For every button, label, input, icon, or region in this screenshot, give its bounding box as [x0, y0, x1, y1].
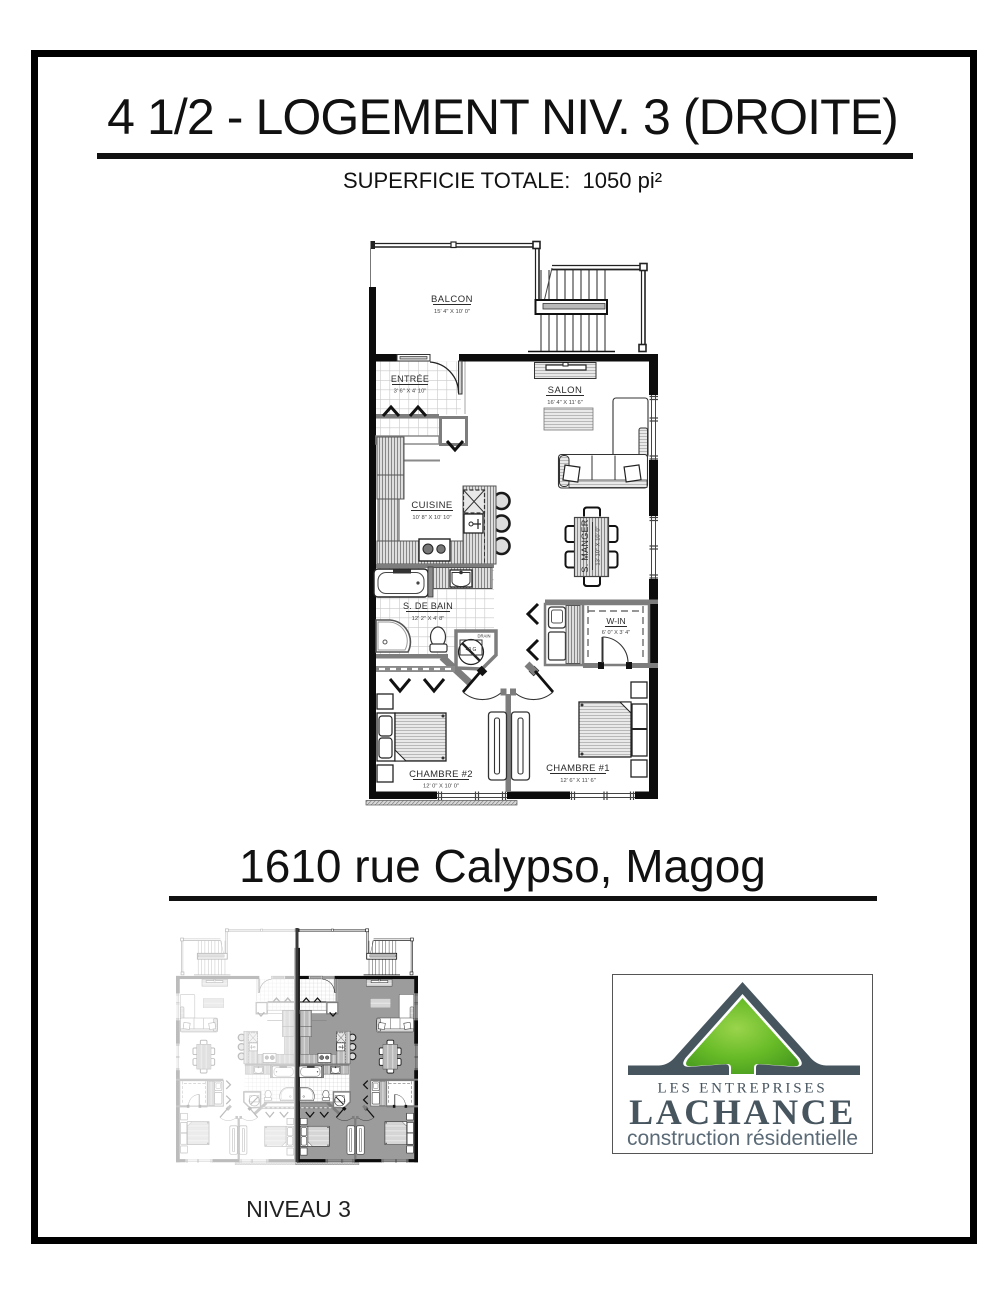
svg-text:LACHANCE: LACHANCE [629, 1092, 856, 1132]
svg-text:12' 0" X 10' 0": 12' 0" X 10' 0" [423, 784, 459, 790]
svg-text:W-IN: W-IN [606, 616, 625, 626]
svg-text:S. DE BAIN: S. DE BAIN [403, 601, 453, 611]
svg-text:12' 6" X 11' 6": 12' 6" X 11' 6" [560, 778, 596, 784]
svg-text:10' 8" X 10' 10": 10' 8" X 10' 10" [412, 515, 451, 521]
svg-text:6' 0" X 3' 4": 6' 0" X 3' 4" [602, 630, 631, 636]
svg-text:12' 2" X 4' 8": 12' 2" X 4' 8" [412, 616, 445, 622]
svg-text:ENTRÉE: ENTRÉE [391, 374, 429, 384]
svg-text:CHAMBRE #1: CHAMBRE #1 [546, 763, 610, 774]
svg-text:3' 6" X 4' 10": 3' 6" X 4' 10" [394, 389, 427, 395]
svg-text:SALON: SALON [548, 385, 583, 396]
svg-text:DRAIN: DRAIN [477, 634, 490, 639]
svg-text:construction résidentielle: construction résidentielle [627, 1127, 858, 1150]
svg-text:16' 4" X 11' 6": 16' 4" X 11' 6" [547, 400, 583, 406]
svg-text:CHAMBRE #2: CHAMBRE #2 [409, 769, 473, 780]
svg-text:40 G: 40 G [466, 647, 477, 653]
svg-text:CUISINE: CUISINE [411, 500, 452, 511]
svg-text:15' 4" X 10' 0": 15' 4" X 10' 0" [434, 309, 470, 315]
svg-text:BALCON: BALCON [431, 294, 473, 305]
svg-text:13' 10" X 10' 0": 13' 10" X 10' 0" [596, 526, 602, 565]
svg-text:S. MANGER: S. MANGER [580, 519, 590, 572]
